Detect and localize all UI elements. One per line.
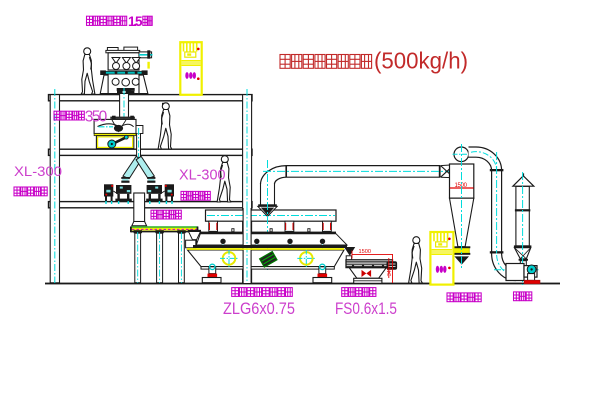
svg-text:1500: 1500 [359,249,371,255]
svg-text:XL-300: XL-300 [179,168,226,184]
svg-text:(500kg/h): (500kg/h) [374,48,468,74]
svg-text:345: 345 [387,267,393,276]
svg-text:XL-300: XL-300 [14,163,62,179]
svg-text:FS0.6x1.5: FS0.6x1.5 [335,299,397,318]
svg-text:1.5: 1.5 [128,14,143,29]
svg-text:ZLG6x0.75: ZLG6x0.75 [223,299,295,318]
svg-text:350: 350 [85,109,108,126]
